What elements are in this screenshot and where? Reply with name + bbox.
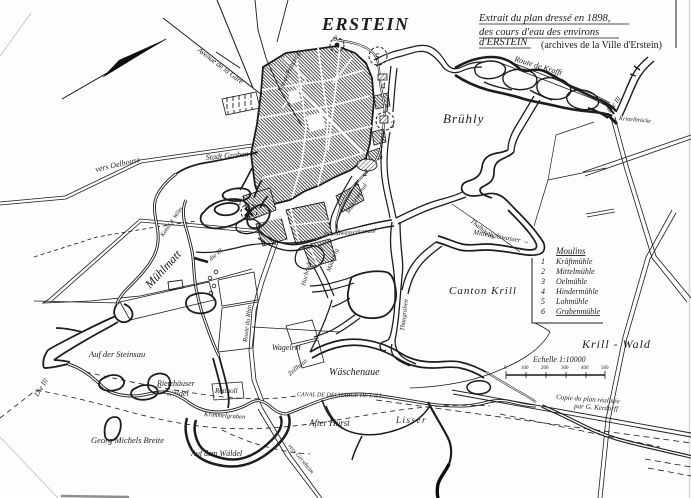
svg-text:4: 4: [381, 81, 386, 91]
svg-text:5: 5: [541, 297, 545, 306]
svg-text:Auf der Steinsau: Auf der Steinsau: [88, 349, 145, 359]
svg-text:Die Ill: Die Ill: [32, 377, 50, 399]
svg-text:Wagelrot: Wagelrot: [272, 343, 302, 352]
svg-text:Echelle 1:10000: Echelle 1:10000: [532, 355, 586, 364]
svg-text:Krittelbrücke: Krittelbrücke: [618, 116, 652, 125]
svg-text:400: 400: [581, 366, 589, 371]
svg-text:vers Gerstheim: vers Gerstheim: [286, 443, 314, 475]
svg-text:Hochrodt: Hochrodt: [300, 261, 313, 288]
svg-text:Grabenmühle: Grabenmühle: [556, 307, 600, 316]
svg-text:Rottnoll: Rottnoll: [214, 387, 238, 395]
svg-text:Thaugraben: Thaugraben: [399, 299, 410, 331]
svg-text:6: 6: [541, 307, 545, 316]
svg-text:Hindermühle: Hindermühle: [555, 287, 599, 296]
svg-text:Krill - Wald: Krill - Wald: [581, 337, 651, 351]
svg-text:Route du Rhin: Route du Rhin: [242, 304, 254, 343]
svg-text:2: 2: [541, 267, 545, 276]
svg-text:500: 500: [601, 366, 609, 371]
svg-text:6: 6: [333, 34, 337, 43]
svg-text:die Ill: die Ill: [208, 247, 224, 262]
svg-text:3: 3: [540, 277, 545, 286]
svg-text:Extrait du plan dressé en 1898: Extrait du plan dressé en 1898,: [478, 13, 610, 24]
svg-text:Rietzhäuser: Rietzhäuser: [156, 379, 196, 388]
svg-text:Canton Krill: Canton Krill: [449, 285, 517, 297]
svg-text:200: 200: [541, 366, 549, 371]
svg-text:300: 300: [561, 366, 569, 371]
svg-text:Lisser: Lisser: [395, 415, 427, 425]
svg-text:Brandwasserkanaal: Brandwasserkanaal: [324, 227, 377, 238]
svg-text:Lohmühle: Lohmühle: [555, 297, 588, 306]
svg-text:Mühlmatt: Mühlmatt: [141, 247, 184, 292]
svg-text:d'ERSTEIN: d'ERSTEIN: [479, 37, 528, 48]
svg-text:Stadt Graben →: Stadt Graben →: [205, 148, 258, 162]
svg-text:vers Oelhouse: vers Oelhouse: [94, 155, 141, 174]
svg-text:3: 3: [389, 120, 395, 130]
svg-text:ERSTEIN: ERSTEIN: [321, 14, 410, 34]
svg-text:Georg Michels Breite: Georg Michels Breite: [91, 435, 164, 445]
svg-text:Moulins: Moulins: [555, 246, 586, 256]
svg-text:2: 2: [363, 168, 368, 178]
svg-text:Mittelmühle: Mittelmühle: [555, 267, 595, 276]
svg-text:Wäschenaue: Wäschenaue: [329, 367, 380, 378]
svg-text:(archives de la Ville d'Erstei: (archives de la Ville d'Erstein): [541, 40, 662, 51]
svg-text:4: 4: [541, 287, 545, 296]
svg-text:Kräftmühle: Kräftmühle: [555, 257, 593, 266]
svg-text:Brühly: Brühly: [443, 111, 484, 126]
svg-text:Oelmühle: Oelmühle: [556, 277, 588, 286]
svg-text:After Hurst: After Hurst: [308, 418, 350, 428]
svg-text:100: 100: [521, 366, 529, 371]
svg-text:CANAL DE DECHARGE DE L'ILL: CANAL DE DECHARGE DE L'ILL: [297, 392, 383, 400]
svg-text:1: 1: [541, 257, 545, 266]
